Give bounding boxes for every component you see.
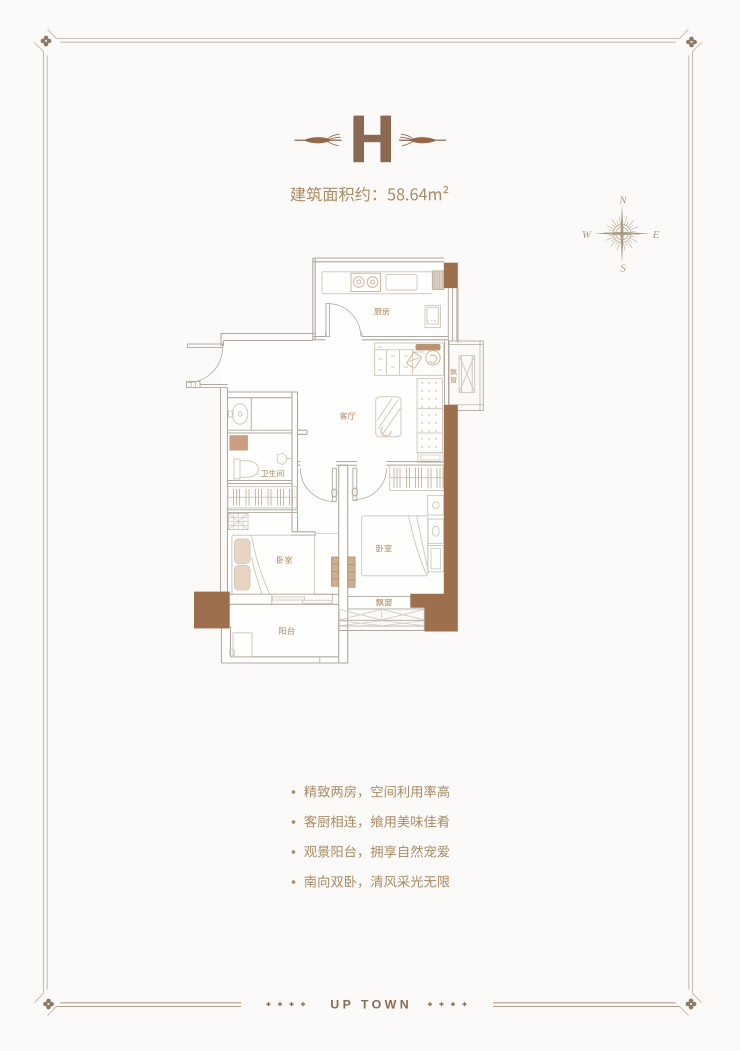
svg-text:UP TOWN: UP TOWN: [330, 997, 412, 1011]
svg-text:W: W: [582, 229, 592, 241]
svg-text:E: E: [652, 229, 660, 241]
svg-text:N: N: [618, 195, 627, 207]
svg-text:S: S: [620, 263, 626, 275]
